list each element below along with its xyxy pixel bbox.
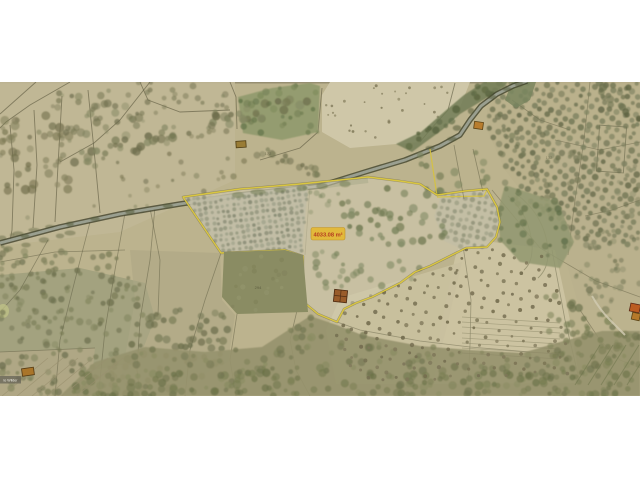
svg-text:lo Wilder: lo Wilder: [4, 379, 19, 383]
svg-text:4033.08 m²: 4033.08 m²: [313, 232, 342, 239]
